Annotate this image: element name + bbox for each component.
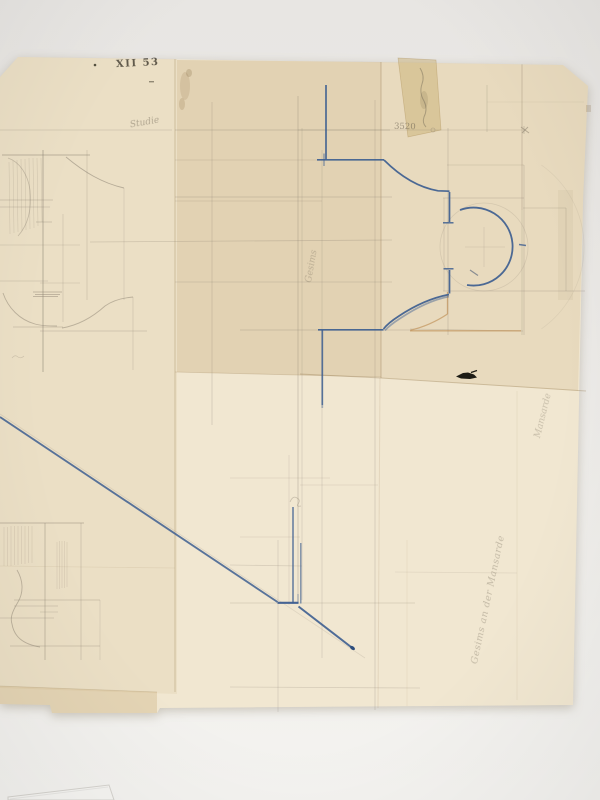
dimension-label: 3520 [394, 123, 416, 132]
ink-dot [94, 64, 97, 67]
catalog-number: XII 53 [116, 57, 160, 70]
scanned-drawing-photo: XII 53 Studie 3520 Gesims Mansarde Gesim… [0, 0, 600, 800]
drawing-sheet-svg [0, 0, 600, 800]
pencil-dash [149, 81, 154, 82]
circle-right-dash [519, 245, 526, 246]
second-sheet-corner [8, 785, 114, 800]
